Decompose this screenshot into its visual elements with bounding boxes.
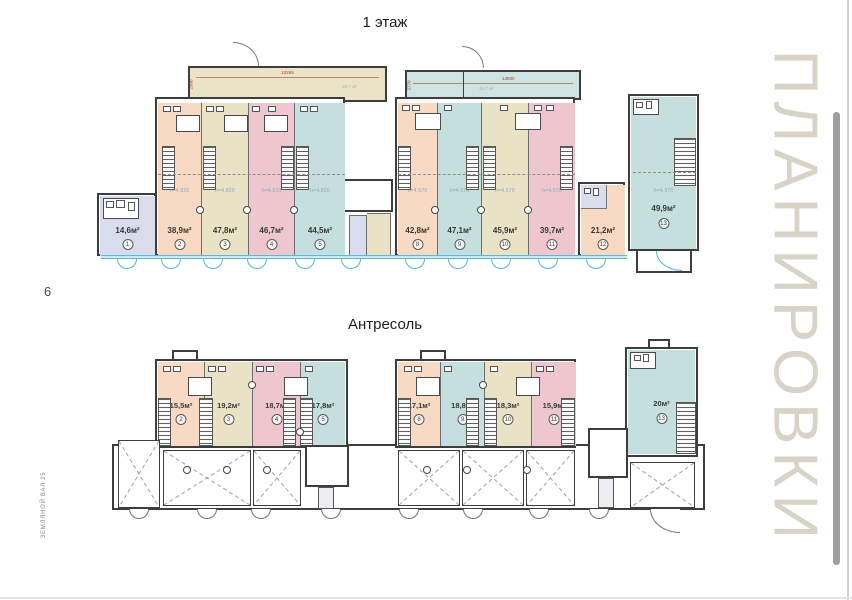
room-number-badge: 11 (549, 414, 560, 425)
annex-left-length-dim: 10265 (190, 70, 385, 75)
column (248, 381, 256, 389)
room-area-label: 14,6м² (100, 226, 155, 235)
dimension-line (196, 77, 379, 78)
sink-fixture (252, 106, 260, 112)
void-cross (164, 451, 250, 505)
void-cross (119, 441, 159, 507)
bathroom-unit (416, 377, 440, 396)
void-cross (527, 451, 574, 505)
void-area (163, 450, 251, 506)
mezzanine-edge-dashed-line (398, 174, 575, 175)
wall-bump (420, 350, 446, 361)
annex-right-area: 36.7 м² (479, 86, 494, 91)
room-area-label: 42,8м² (398, 226, 437, 235)
stairs (674, 138, 696, 186)
void-area (118, 440, 160, 508)
bathroom-unit (224, 115, 248, 132)
entry-door-arc (586, 259, 606, 269)
void-area (630, 462, 695, 508)
entry-door-arc (161, 259, 181, 269)
bathroom-unit (188, 377, 212, 396)
toilet-fixture (593, 188, 599, 196)
door-swing-arc (233, 42, 259, 66)
column (183, 466, 191, 474)
stairs (560, 146, 573, 190)
room-number-badge: 8 (414, 414, 425, 425)
room-area-label: 39,7м² (529, 226, 575, 235)
entry-door-arc (405, 259, 425, 269)
toilet-fixture (116, 200, 125, 208)
sink-fixture (534, 105, 542, 111)
stove-fixture (216, 106, 224, 112)
page-number: 6 (44, 284, 51, 299)
door-arc (321, 509, 341, 519)
entry-door-arc (203, 259, 223, 269)
room-number-badge: 5 (318, 414, 329, 425)
bathroom-unit (515, 113, 541, 130)
room-number-badge: 12 (598, 239, 609, 250)
stairs (296, 146, 309, 190)
stairs (203, 146, 216, 190)
void-area (253, 450, 301, 506)
door-arc (650, 509, 680, 533)
sink-fixture (490, 366, 498, 372)
bathroom-unit (284, 377, 308, 396)
sink-fixture (206, 106, 214, 112)
room-number-badge: 10 (503, 414, 514, 425)
mezzanine-title: Антресоль (300, 316, 470, 333)
void-cross (631, 463, 694, 507)
room-area-label: 46,7м² (249, 226, 294, 235)
room-area-label: 21,2м² (581, 226, 625, 235)
door-swing-arc (462, 46, 484, 68)
bathroom-unit (516, 377, 540, 396)
annex-divider-wall (463, 72, 464, 98)
room-area-label: 38,9м² (158, 226, 201, 235)
annex-right-length-dim: 13930 (502, 76, 515, 81)
stove-fixture (266, 366, 274, 372)
room-area-label: 44,5м² (295, 226, 345, 235)
column (423, 466, 431, 474)
entry-door-arc (538, 259, 558, 269)
void-cross (399, 451, 459, 505)
door-arc (399, 509, 419, 519)
bathroom-unit (415, 113, 441, 130)
sink-fixture (208, 366, 216, 372)
column (196, 206, 204, 214)
room-number-badge: 2 (174, 239, 185, 250)
room-area-label: 45,9м² (482, 226, 528, 235)
column (524, 206, 532, 214)
page: 1 этаж Антресоль 6 ЗЕМЛЯНОЙ ВАЛ 25 ПЛАНИ… (0, 0, 852, 600)
annex-right: 13930 2770 36.7 м² (405, 70, 581, 100)
door-arc (129, 509, 149, 519)
dimension-line (413, 83, 573, 84)
scrollbar-thumb[interactable] (833, 112, 840, 565)
room-number-badge: 10 (500, 239, 511, 250)
wall-bump (648, 339, 670, 349)
stairs (283, 398, 296, 446)
shower-fixture (128, 202, 135, 211)
sink-fixture (634, 355, 641, 361)
sink-fixture (444, 105, 452, 111)
sink-fixture (106, 201, 114, 208)
door-arc (463, 509, 483, 519)
room-number-badge: 5 (315, 239, 326, 250)
sink-fixture (402, 105, 410, 111)
column (263, 466, 271, 474)
sink-fixture (444, 366, 452, 372)
service-core (305, 445, 349, 487)
room-number-badge: 8 (412, 239, 423, 250)
stairs (484, 398, 497, 446)
stove-fixture (412, 105, 420, 111)
column (523, 466, 531, 474)
entry-door-arc (295, 259, 315, 269)
watermark-text: ПЛАНИРОВКИ (760, 50, 831, 546)
sink-fixture (300, 106, 308, 112)
entry-door-arc (448, 259, 468, 269)
room-number-badge: 3 (223, 414, 234, 425)
room-number-badge: 13 (658, 218, 669, 229)
room-number-badge: 4 (271, 414, 282, 425)
stairs (676, 402, 696, 454)
sink-fixture (256, 366, 264, 372)
toilet-fixture (643, 354, 649, 362)
stove-fixture (310, 106, 318, 112)
bathroom-unit (264, 115, 288, 132)
room-number-badge: 4 (266, 239, 277, 250)
column (223, 466, 231, 474)
floor1-stair-core (337, 179, 393, 212)
floor1-corridor-7 (367, 213, 391, 256)
room-number-badge: 13 (656, 413, 667, 424)
room-number-badge: 11 (547, 239, 558, 250)
scrollbar-track[interactable] (847, 0, 849, 600)
void-area (398, 450, 460, 506)
entry-door-arc (341, 259, 361, 269)
void-cross (254, 451, 300, 505)
annex-left-area: 29.7 м² (342, 84, 357, 89)
stove-fixture (218, 366, 226, 372)
annex-left-depth-dim: 2900 (189, 79, 194, 89)
stairs (561, 398, 575, 446)
toilet-fixture (646, 101, 652, 109)
sink-fixture (163, 106, 171, 112)
stove-fixture (173, 366, 181, 372)
entry-door-arc (491, 259, 511, 269)
floor1-title: 1 этаж (300, 14, 470, 31)
bottom-divider (0, 597, 852, 599)
stairs (199, 398, 213, 446)
room-area-label: 47,8м² (202, 226, 248, 235)
column (296, 428, 304, 436)
void-area (526, 450, 575, 506)
stairs (300, 398, 313, 446)
room-area-label: 47,1м² (438, 226, 481, 235)
room-number-badge: 3 (220, 239, 231, 250)
stairs (466, 398, 479, 446)
wall-bump (172, 350, 198, 361)
sink-fixture (584, 188, 591, 194)
door-arc (589, 509, 609, 519)
stairs (162, 146, 175, 190)
door-arc (251, 509, 271, 519)
stairs (398, 146, 411, 190)
stairs (398, 398, 411, 446)
door-arc (197, 509, 217, 519)
stove-fixture (173, 106, 181, 112)
column (477, 206, 485, 214)
stairs (466, 146, 479, 190)
service-core (588, 428, 628, 478)
room-number-badge: 2 (176, 414, 187, 425)
mezzanine-edge-dashed-line (158, 174, 345, 175)
door-arc (529, 509, 549, 519)
annex-right-depth-dim: 2770 (407, 80, 412, 90)
bathroom-unit (176, 115, 200, 132)
stairs (281, 146, 294, 190)
shaft (318, 487, 334, 509)
room-number-badge: 9 (454, 239, 465, 250)
stairs (158, 398, 171, 446)
column (243, 206, 251, 214)
mezzanine-edge-dashed-line (633, 172, 696, 173)
sink-fixture (536, 366, 544, 372)
sink-fixture (500, 105, 508, 111)
sink-fixture (163, 366, 171, 372)
column (463, 466, 471, 474)
void-cross (463, 451, 523, 505)
stove-fixture (268, 106, 276, 112)
stove-fixture (546, 105, 554, 111)
sink-fixture (404, 366, 412, 372)
entry-door-arc (247, 259, 267, 269)
ceiling-height-label: h=4,370 (631, 188, 696, 194)
floor1-corridor-6 (349, 215, 367, 256)
sink-fixture (636, 102, 643, 108)
stove-fixture (414, 366, 422, 372)
void-area (462, 450, 524, 506)
stove-fixture (546, 366, 554, 372)
room-number-badge: 1 (122, 239, 133, 250)
sink-fixture (305, 366, 313, 372)
side-address-label: ЗЕМЛЯНОЙ ВАЛ 25 (41, 472, 47, 539)
stairs (483, 146, 496, 190)
room-area-label: 49,9м² (631, 204, 696, 213)
entry-door-arc (117, 259, 137, 269)
column (431, 206, 439, 214)
column (479, 381, 487, 389)
shaft (598, 478, 614, 508)
column (290, 206, 298, 214)
